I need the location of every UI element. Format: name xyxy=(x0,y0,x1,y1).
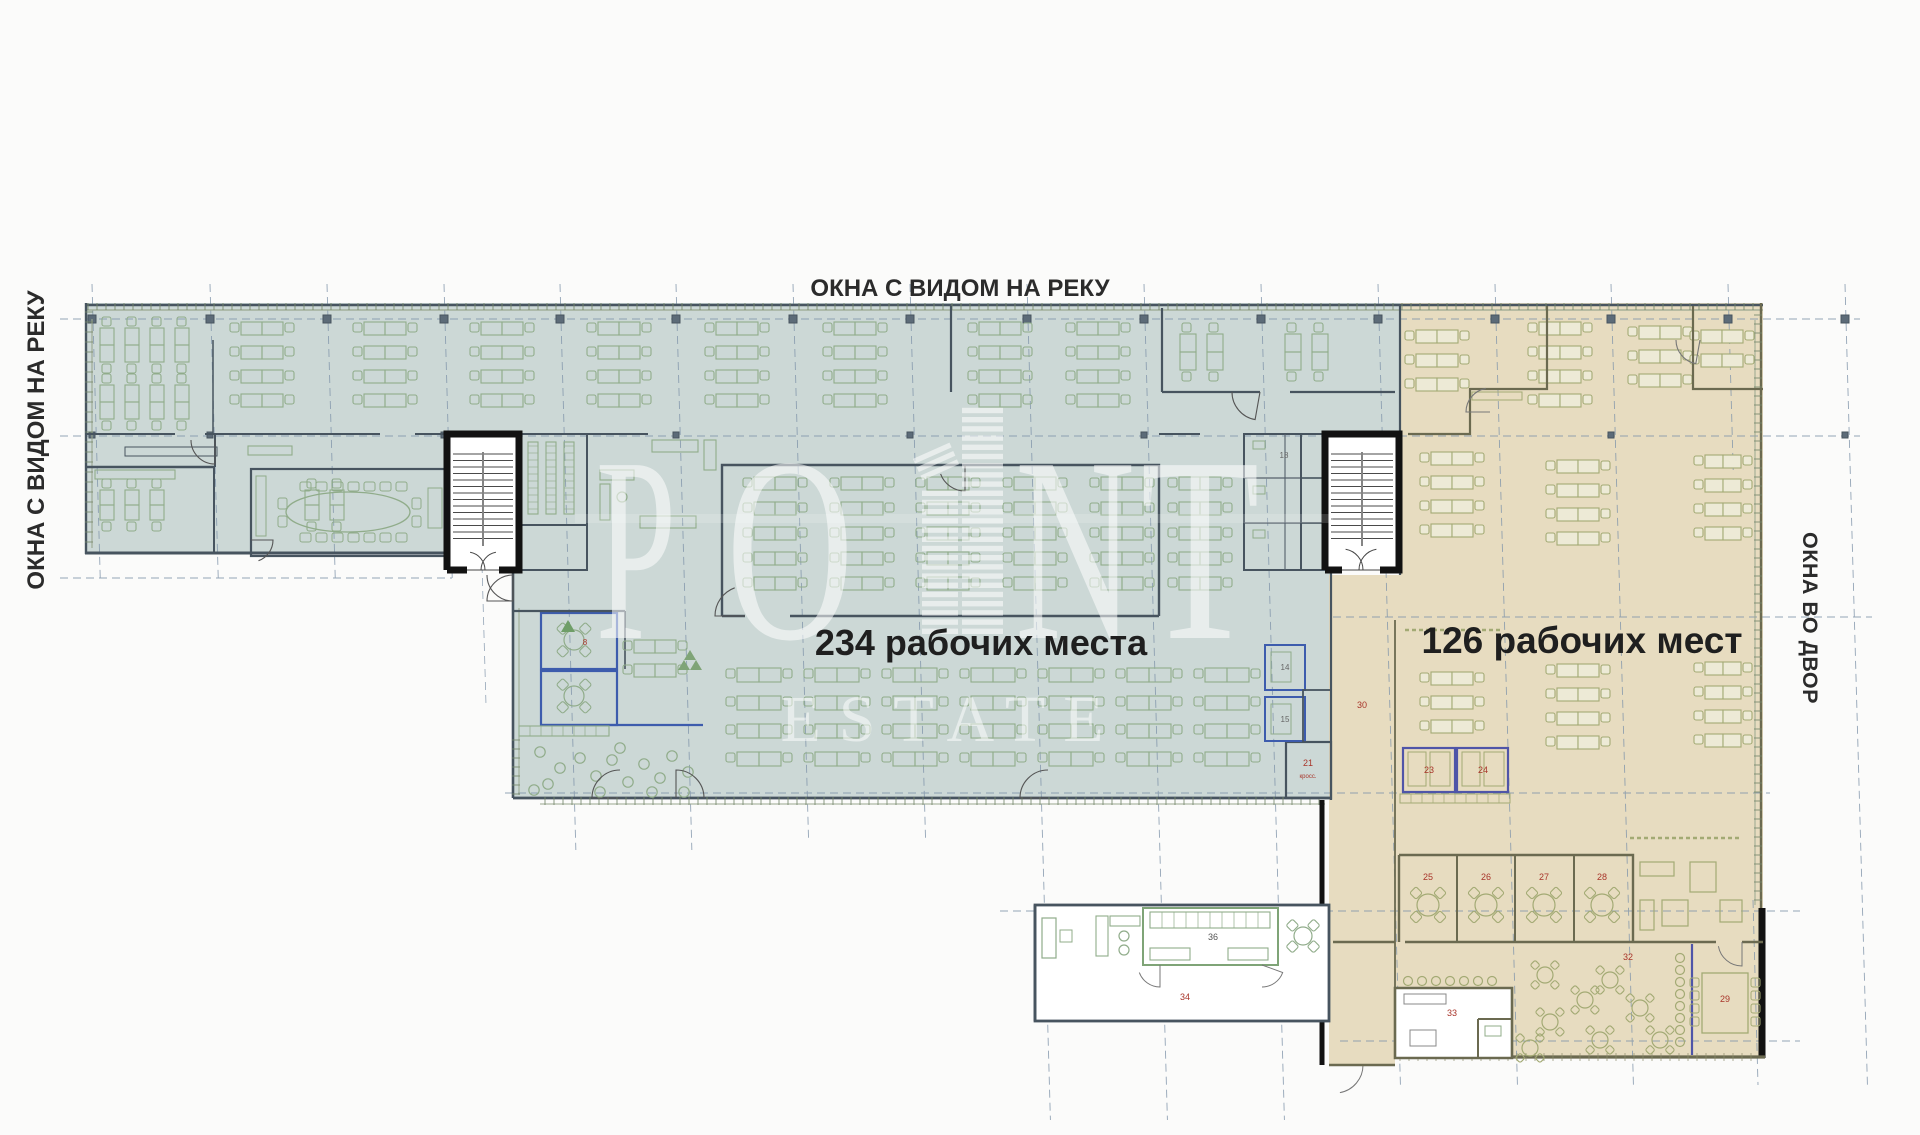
svg-text:15: 15 xyxy=(1281,715,1290,724)
svg-text:18: 18 xyxy=(1280,451,1289,460)
svg-text:234 рабочих места: 234 рабочих места xyxy=(815,622,1148,663)
svg-text:14: 14 xyxy=(1281,663,1290,672)
svg-text:32: 32 xyxy=(1623,952,1633,962)
svg-text:T: T xyxy=(1140,404,1259,696)
svg-text:ОКНА С ВИДОМ НА РЕКУ: ОКНА С ВИДОМ НА РЕКУ xyxy=(810,275,1110,302)
svg-text:кросс.: кросс. xyxy=(1300,774,1317,780)
svg-text:29: 29 xyxy=(1720,994,1730,1004)
svg-text:36: 36 xyxy=(1208,932,1218,942)
svg-text:ОКНА С ВИДОМ НА РЕКУ: ОКНА С ВИДОМ НА РЕКУ xyxy=(23,289,50,589)
svg-text:27: 27 xyxy=(1539,872,1549,882)
svg-text:126 рабочих мест: 126 рабочих мест xyxy=(1422,620,1743,661)
svg-text:34: 34 xyxy=(1180,992,1190,1002)
svg-text:24: 24 xyxy=(1478,765,1488,775)
svg-text:ESTATE: ESTATE xyxy=(780,683,1121,756)
svg-text:23: 23 xyxy=(1424,765,1434,775)
svg-text:28: 28 xyxy=(1597,872,1607,882)
svg-text:P: P xyxy=(596,404,677,696)
svg-text:21: 21 xyxy=(1303,758,1313,768)
svg-text:26: 26 xyxy=(1481,872,1491,882)
svg-text:25: 25 xyxy=(1423,872,1433,882)
svg-text:8: 8 xyxy=(583,638,588,647)
svg-text:30: 30 xyxy=(1357,700,1367,710)
svg-text:ОКНА ВО ДВОР: ОКНА ВО ДВОР xyxy=(1798,532,1822,704)
svg-text:33: 33 xyxy=(1447,1008,1457,1018)
